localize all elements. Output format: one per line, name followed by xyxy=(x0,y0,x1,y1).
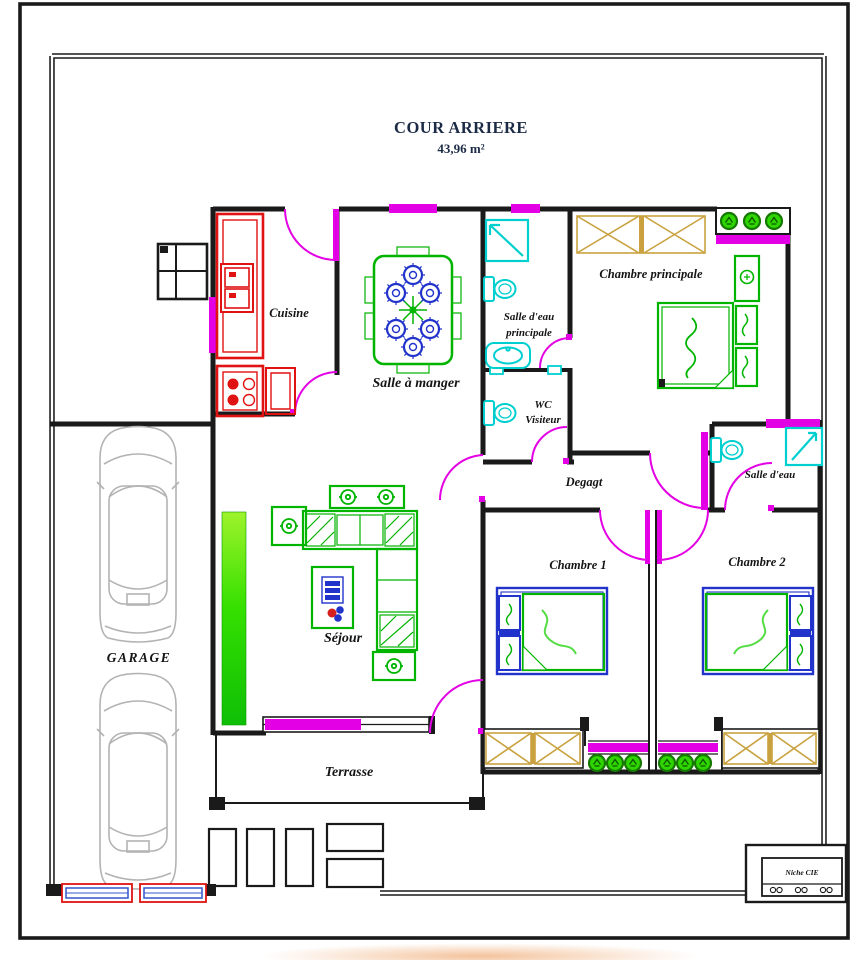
room-label-salle-eau: Salle d'eau xyxy=(745,469,795,481)
niche-cie-box: Niche CIE xyxy=(746,845,846,902)
room-label-chambre-principale: Chambre principale xyxy=(599,267,703,281)
vent-window-bath-2 xyxy=(548,366,561,374)
site-title: COUR ARRIERE xyxy=(394,118,528,137)
floor-plan-canvas: COUR ARRIERE 43,96 m² xyxy=(0,0,866,960)
room-label-salle-eau-principale-2: principale xyxy=(505,327,552,339)
planter-strip xyxy=(222,512,246,725)
dining-chair xyxy=(401,263,425,287)
label-niche-cie: Niche CIE xyxy=(784,868,818,877)
planter-box-top-right xyxy=(716,208,790,244)
window-dining-top xyxy=(389,204,437,213)
window-front-sejour xyxy=(263,717,429,732)
shower-principale xyxy=(486,220,528,261)
washbasin-principale xyxy=(486,343,530,368)
window-chambre-principale-top xyxy=(716,235,790,244)
room-label-salle-a-manger: Salle à manger xyxy=(372,376,460,391)
room-label-terrasse: Terrasse xyxy=(325,765,374,780)
room-label-chambre-2: Chambre 2 xyxy=(728,555,785,569)
room-label-salle-eau-principale-1: Salle d'eau xyxy=(504,311,554,323)
window-salle-eau-top xyxy=(766,419,820,428)
room-label-degagt: Degagt xyxy=(565,475,603,489)
site-area: 43,96 m² xyxy=(437,141,484,156)
room-label-wc-2: Visiteur xyxy=(525,414,561,426)
toilet-wc-visiteur xyxy=(484,401,516,425)
toilet-principale xyxy=(484,277,516,301)
room-label-wc-1: WC xyxy=(534,399,552,411)
kitchen-sink xyxy=(221,264,253,312)
shower-salle-eau xyxy=(786,428,822,465)
room-label-sejour: Séjour xyxy=(324,631,363,646)
garage-doors xyxy=(46,884,216,902)
room-label-garage: GARAGE xyxy=(107,650,172,665)
utility-cabinet xyxy=(158,244,207,299)
toilet-salle-eau xyxy=(711,438,743,462)
floor-plan-document: COUR ARRIERE 43,96 m² xyxy=(0,0,866,960)
room-label-chambre-1: Chambre 1 xyxy=(549,558,606,572)
room-label-cuisine: Cuisine xyxy=(269,306,309,320)
window-bath-top xyxy=(511,204,540,213)
